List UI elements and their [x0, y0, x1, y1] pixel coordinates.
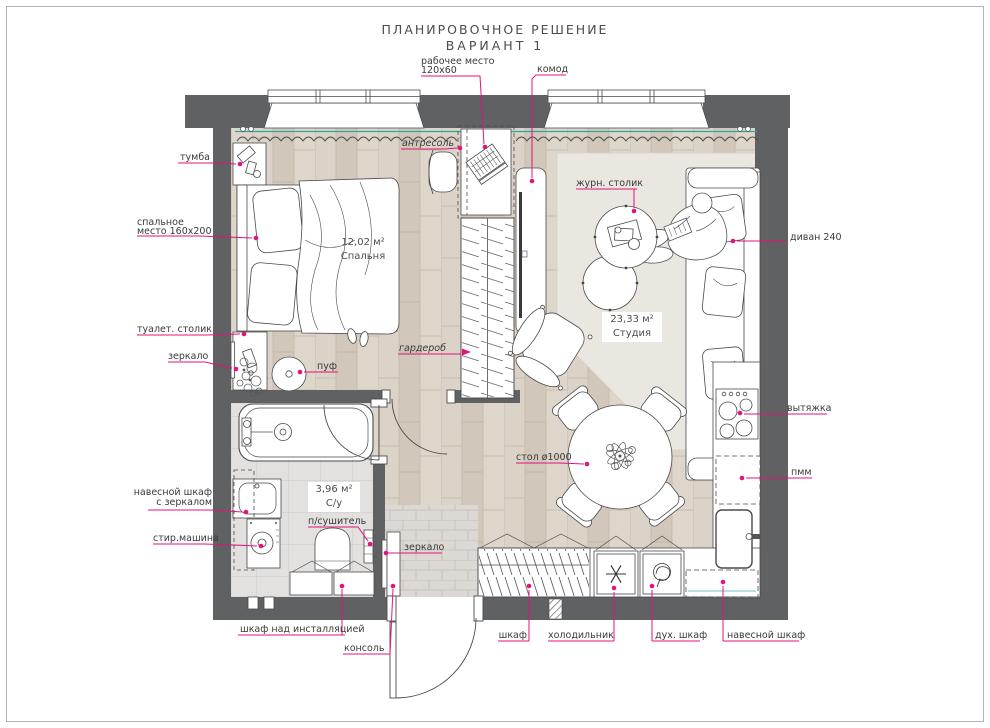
- label-antresol: антресоль: [402, 139, 454, 149]
- bath-area-name: С/у: [312, 497, 356, 511]
- bedroom-window: [264, 90, 424, 128]
- floor-plan-page: ПЛАНИРОВОЧНОЕ РЕШЕНИЕ ВАРИАНТ 1: [0, 0, 990, 728]
- label-dishwasher: пмм: [791, 468, 812, 478]
- oven: [640, 551, 684, 597]
- hall-mirror: [382, 540, 387, 588]
- label-mirror-bath: зеркало: [168, 352, 208, 362]
- label-bed-line2: место 160х200: [137, 227, 212, 237]
- label-table: стол ø1000: [516, 453, 572, 463]
- bath-area-label: 3,96 м² С/у: [308, 482, 360, 512]
- label-console: консоль: [344, 644, 384, 654]
- label-workplace-line2: 120х60: [421, 66, 457, 76]
- studio-area-name: Студия: [606, 327, 658, 341]
- wall-right: [760, 128, 788, 620]
- bedroom-area-name: Спальня: [330, 250, 396, 264]
- wardrobe-closet: [461, 218, 514, 398]
- washing-machine: [247, 519, 280, 568]
- leader-tumba: [178, 163, 236, 164]
- vent-shaft: [549, 599, 562, 619]
- label-sofa: диван 240: [790, 233, 842, 243]
- wall-top-middle: [418, 95, 550, 128]
- dressing-table: [231, 332, 267, 390]
- wall-bottom-right: [476, 597, 788, 620]
- label-hood: вытяжка: [787, 404, 831, 414]
- bedroom-area-value: 12,02 м²: [330, 236, 396, 250]
- wall-top-left: [185, 95, 270, 128]
- label-pouf: пуф: [317, 362, 337, 372]
- wall-left: [213, 128, 231, 620]
- entrance-door: [387, 596, 483, 698]
- hallway-closet: [478, 548, 590, 597]
- label-komod: комод: [537, 65, 568, 75]
- label-closet: шкаф: [468, 631, 527, 641]
- wall-bottom-left: [213, 597, 389, 620]
- toilet: [315, 528, 350, 570]
- label-mirror-hall: зеркало: [404, 543, 444, 553]
- label-fridge: холодильник: [548, 631, 614, 641]
- wall-top-right: [703, 95, 790, 128]
- floor-plan-drawing: [0, 0, 990, 728]
- label-tumba: тумба: [180, 153, 210, 163]
- studio-area-label: 23,33 м² Студия: [602, 312, 662, 342]
- desk-chair: [429, 150, 457, 194]
- label-cabinet-installation: шкаф над инсталляцией: [240, 625, 365, 635]
- label-wall-cabinet-kitchen: навесной шкаф: [727, 631, 805, 641]
- dishwasher-outline: [716, 456, 760, 504]
- bath-area-value: 3,96 м²: [312, 483, 356, 497]
- bedroom-area-label: 12,02 м² Спальня: [330, 236, 396, 264]
- fridge: [594, 551, 638, 597]
- label-washing-machine: стир.машина: [153, 534, 219, 544]
- label-coffee-table: журн. столик: [576, 179, 643, 189]
- studio-area-value: 23,33 м²: [606, 313, 658, 327]
- label-towel-dryer: п/сушитель: [308, 517, 366, 527]
- label-wall-cabinet-mirror-line2: с зеркалом: [120, 498, 212, 508]
- bathtub: [239, 404, 373, 461]
- studio-window: [544, 90, 709, 128]
- label-toilet-table: туалет. столик: [137, 325, 212, 335]
- mirror-strip: [231, 342, 235, 378]
- tv: [519, 192, 522, 318]
- label-oven: дух. шкаф: [655, 631, 707, 641]
- label-wardrobe: гардероб: [399, 344, 446, 354]
